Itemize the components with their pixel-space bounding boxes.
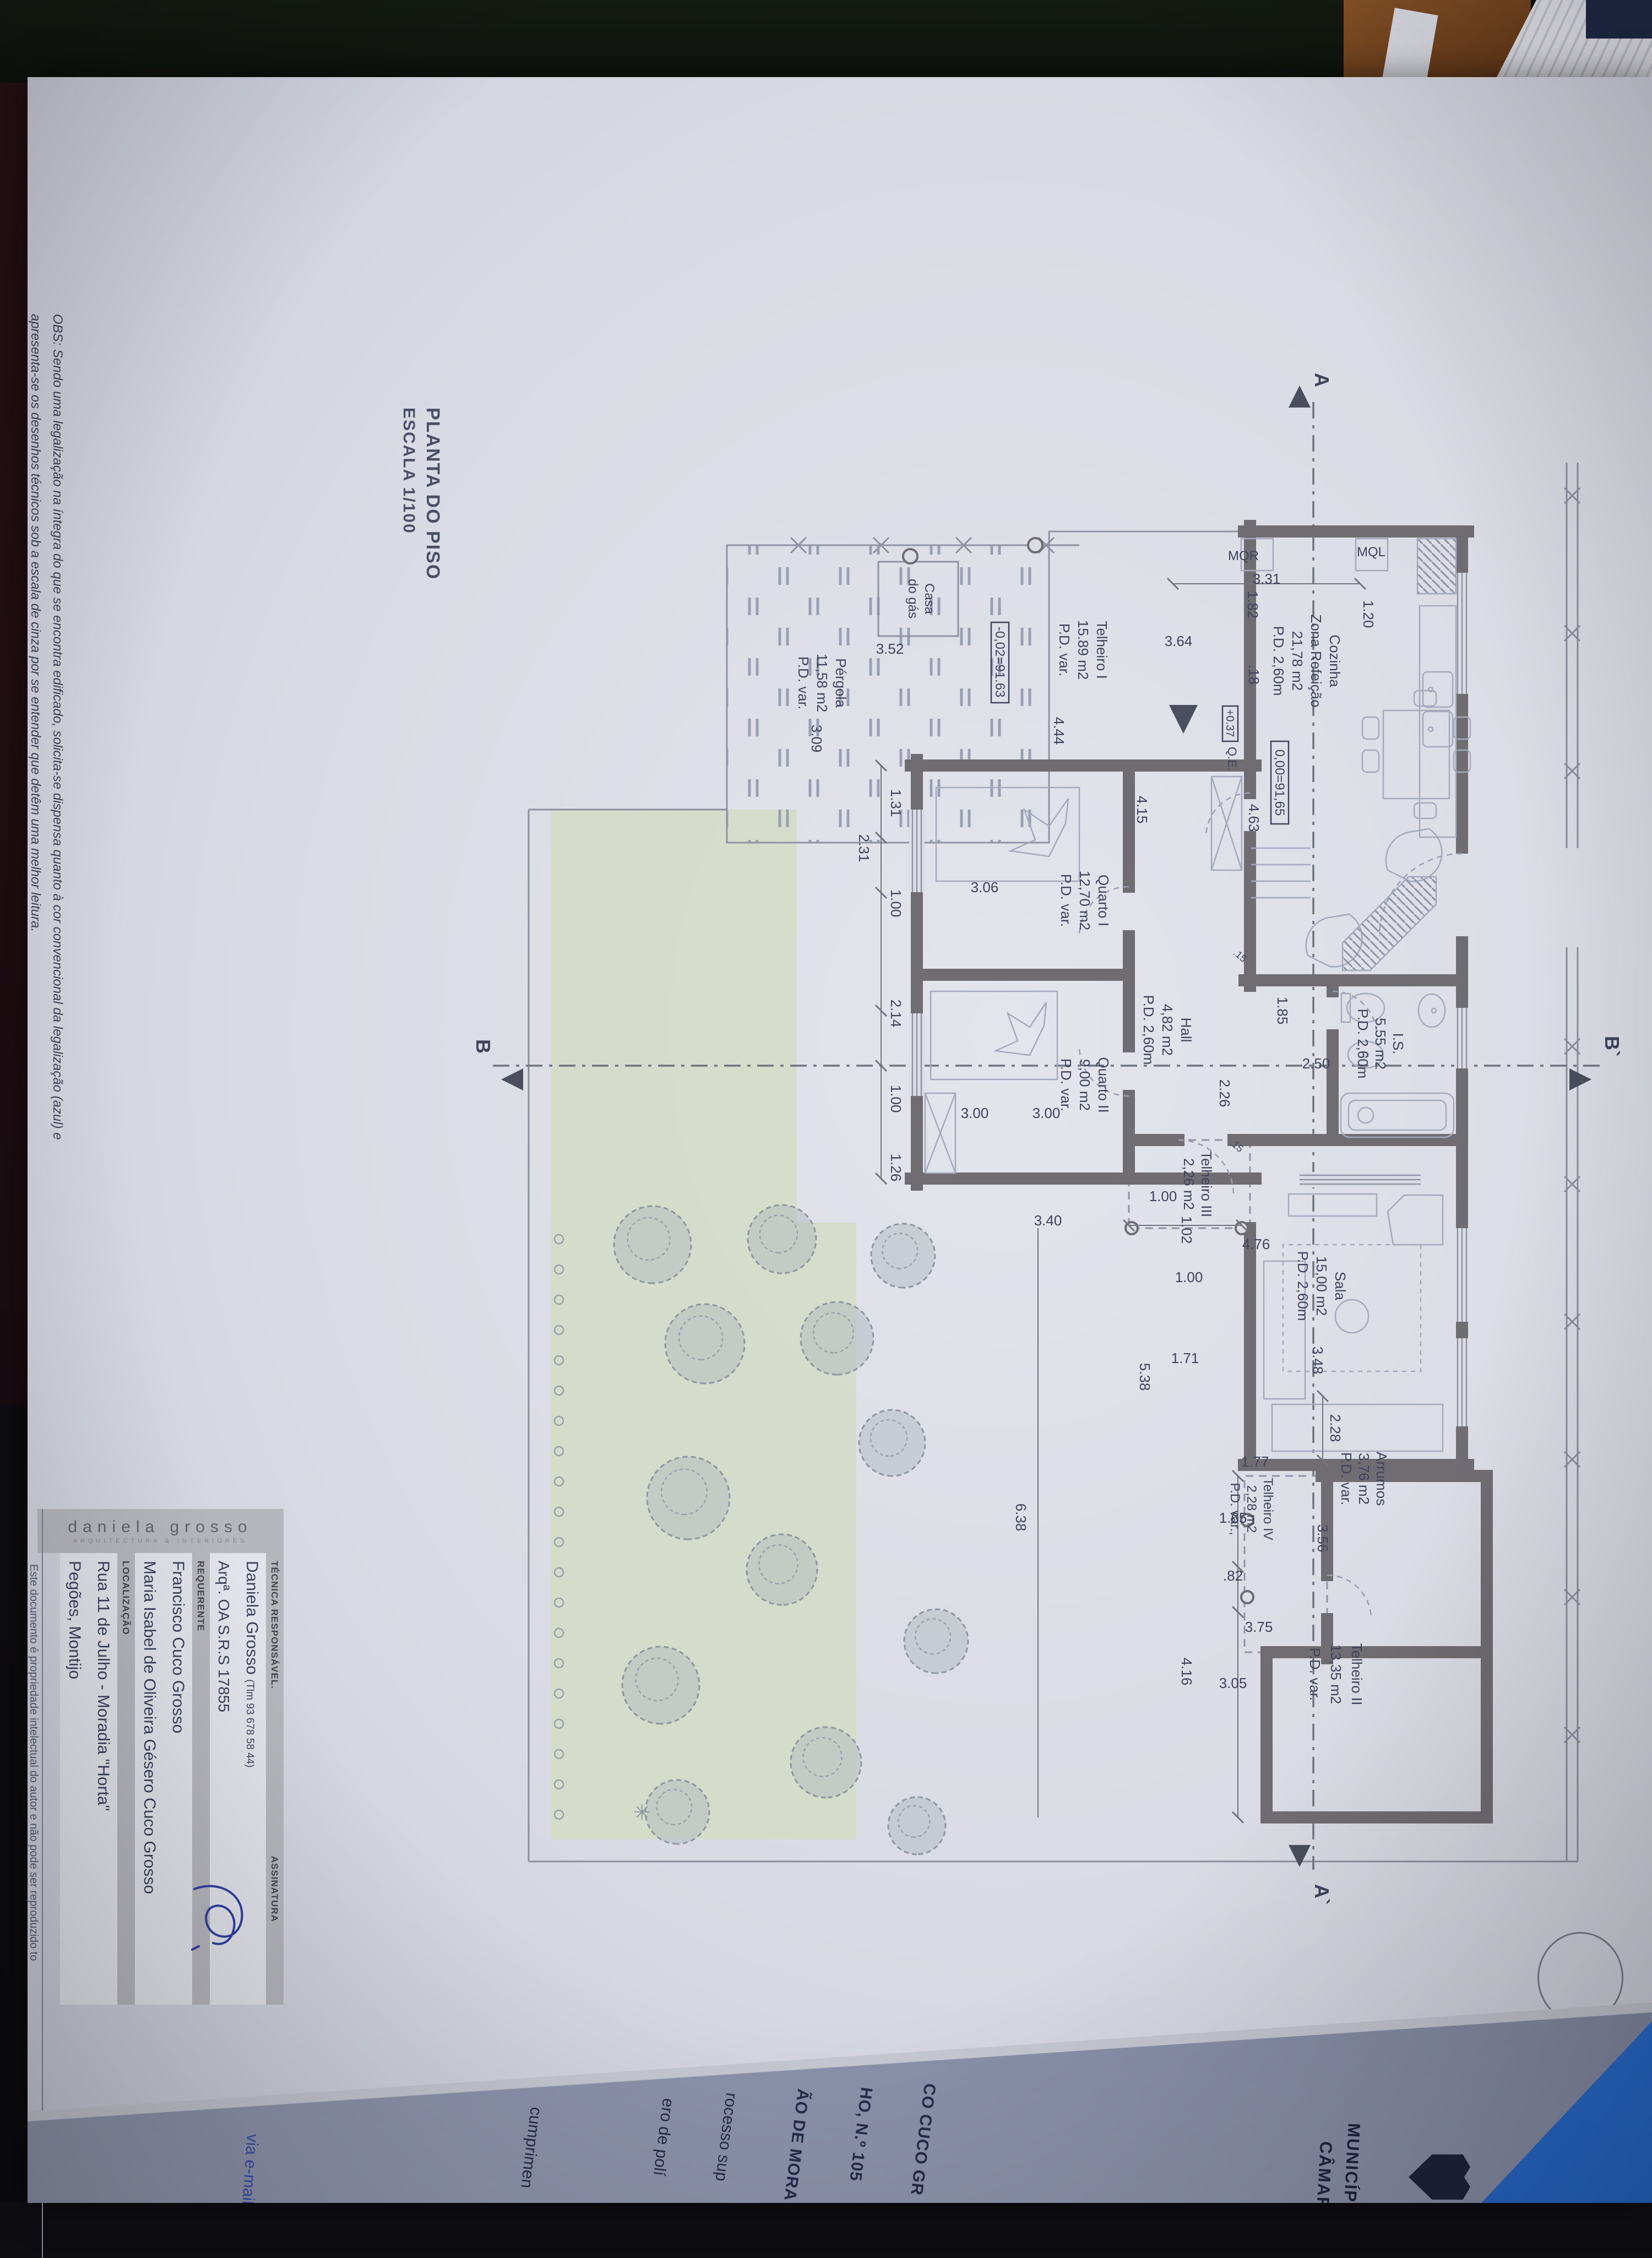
architect-logo-strip: daniela grosso ARQUITECTURA & INTERIORES [37, 1509, 284, 1553]
room-telheiro3-area: 2,26 m2 [1181, 1158, 1197, 1210]
dim-214: 2.14 [888, 1000, 904, 1028]
label-mqr: MQR [1228, 549, 1259, 563]
dim-356: 3.56 [1314, 1524, 1331, 1553]
dim-177: 1.77 [1241, 1453, 1269, 1470]
paper-stack-shadow [1586, 0, 1652, 39]
dim-638: 6.38 [1013, 1503, 1029, 1532]
dim-250: 2.50 [1302, 1055, 1330, 1072]
letter-fragment: ero de polí [649, 2097, 677, 2177]
letter-fragment: rocesso sup [711, 2092, 741, 2183]
room-is-pd: P.D. 2,60m [1355, 1009, 1371, 1079]
level-9163: -0,02=91.63 [992, 627, 1007, 698]
room-is-area: 5.55 m2 [1372, 1018, 1389, 1070]
dim-102: 1.02 [1178, 1216, 1195, 1244]
dim-126: 1.26 [888, 1154, 904, 1182]
via-email-note: via e-mail [238, 2134, 262, 2205]
tree [791, 1727, 861, 1798]
room-telheiro2-area: 13,35 m2 [1328, 1644, 1344, 1704]
room-telheiro2-pd: P.D. var. [1307, 1648, 1323, 1701]
room-cozinha-area: 21,78 m2 [1289, 631, 1306, 691]
room-telheiro4: Telheiro IV [1260, 1478, 1275, 1540]
room-hall: Hall [1178, 1018, 1194, 1043]
level-037: +0.37 [1224, 709, 1236, 737]
dim-131: 1.31 [888, 789, 904, 817]
dim-352: 3.52 [876, 641, 904, 657]
localizacao-1: Rua 11 de Julho - Moradia "Horta" [89, 1553, 117, 2005]
dim-415: 4.15 [1134, 796, 1150, 824]
requerente-2: Maria Isabel de Oliveira Gésero Cuco Gro… [135, 1553, 164, 2005]
dim-476: 4.76 [1242, 1236, 1270, 1252]
dim-375: 3.75 [1245, 1619, 1273, 1635]
dim-364: 3.64 [1165, 633, 1193, 649]
dim-300a: 3.00 [1032, 1105, 1061, 1121]
room-casagas-2: do gás [905, 579, 920, 618]
dim-231: 2.31 [856, 834, 872, 862]
dim-340: 3.40 [1034, 1212, 1062, 1229]
field-label-tecnica: TÉCNICA RESPONSÁVEL. ASSINATURA [266, 1553, 284, 2005]
room-is: I.S. [1390, 1033, 1406, 1054]
room-cozinha: Cozinha [1327, 634, 1343, 687]
label-qe: Q.E. [1225, 747, 1239, 771]
dim-100b: 1.00 [888, 1085, 904, 1113]
municipio-text: MUNICÍPIO [1339, 2123, 1363, 2223]
room-hall-area: 4,82 m2 [1159, 1004, 1176, 1056]
letter-fragment: ÃO DE MORA [780, 2088, 812, 2202]
dim-18: .18 [1246, 665, 1262, 685]
room-telheiro3: Telheiro III [1198, 1151, 1215, 1217]
dim-182: 1.82 [1245, 591, 1261, 619]
room-sala-area: 15,00 m2 [1313, 1256, 1330, 1316]
garden-asterisk: ✳ [629, 1803, 653, 1821]
letter-fragment: cumprimen [517, 2106, 545, 2189]
room-pergola: Pérgola [833, 658, 849, 708]
room-cozinha-pd: P.D. 2,60m [1270, 626, 1287, 696]
room-telheiro1: Telheiro I [1094, 621, 1110, 679]
entrance-arrow [1169, 705, 1198, 734]
marker-b: B [472, 1039, 494, 1054]
dim-100c: 1.00 [1149, 1188, 1177, 1204]
room-telheiro2: Telheiro II [1349, 1643, 1365, 1706]
dim-463: 4.63 [1246, 804, 1262, 832]
field-label-assinatura: ASSINATURA [269, 1856, 280, 2005]
marker-a-prime: A` [1311, 1884, 1333, 1905]
room-quarto1-area: 12,70 m2 [1077, 871, 1093, 930]
architect-logo-sub: ARQUITECTURA & INTERIORES [68, 1538, 253, 1544]
room-telheiro1-area: 15.89 m2 [1075, 620, 1091, 680]
obs-note: OBS: Sendo uma legalização na íntegra do… [24, 314, 68, 1140]
tree [801, 1302, 873, 1375]
tree [904, 1609, 968, 1673]
room-quarto2-pd: P.D. var. [1058, 1059, 1074, 1111]
tree [622, 1647, 699, 1724]
room-telheiro1-pd: P.D. var. [1056, 623, 1073, 676]
room-pergola-area: 11,58 m2 [814, 654, 830, 712]
camara-text: CÂMARA [1312, 2141, 1336, 2224]
obs-line1: OBS: Sendo uma legalização na íntegra do… [46, 314, 68, 1140]
localizacao-2: Pegões, Montijo [60, 1553, 89, 2005]
room-telheiro4-pd: P.D. var., [1227, 1483, 1242, 1535]
dim-228: 2.28 [1327, 1414, 1344, 1442]
drawing-scale: ESCALA 1/100 [396, 408, 421, 580]
dim-171: 1.71 [1171, 1350, 1199, 1366]
signature [173, 1872, 256, 1983]
marker-a: A [1311, 373, 1333, 387]
tree [888, 1797, 945, 1854]
dim-444: 4.44 [1051, 717, 1067, 745]
drawing-title: PLANTA DO PISO ESCALA 1/100 [396, 408, 445, 580]
tree [614, 1206, 691, 1283]
letter-fragment: HO, N.º 105 [845, 2086, 876, 2183]
drawing-sheet: CozinhaZona Refeição21,78 m2P.D. 2,60mTe… [28, 77, 1652, 2203]
dim-165: 1.65 [1219, 1510, 1247, 1526]
dim-538: 5.38 [1137, 1363, 1153, 1391]
tree [645, 1780, 709, 1844]
dim-306: 3.06 [971, 879, 999, 895]
tree [747, 1534, 817, 1605]
architect-logo: daniela grosso [68, 1518, 253, 1537]
letter-fragment: CO CUCO GR [906, 2082, 939, 2197]
room-arrumos: Arrumos [1373, 1452, 1390, 1506]
dim-348: 3.48 [1309, 1347, 1326, 1375]
tree [871, 1224, 935, 1288]
room-sala: Sala [1332, 1272, 1349, 1301]
room-pergola-pd: P.D. var. [795, 656, 812, 709]
dim-100d: 1.00 [1175, 1269, 1203, 1285]
room-cozinha-2: Zona Refeição [1308, 614, 1324, 707]
level-9165: 0,00=91,65 [1272, 750, 1287, 816]
label-mql: MQL [1357, 545, 1385, 560]
drawing-title-line1: PLANTA DO PISO [421, 408, 445, 580]
room-sala-pd: P.D. 2,60m [1295, 1251, 1311, 1321]
dim-300b: 3.00 [961, 1105, 989, 1121]
coat-of-arms-emblem [1409, 2154, 1470, 2200]
room-casagas-1: Casa [922, 583, 937, 615]
room-arrumos-pd: P.D. var. [1338, 1452, 1355, 1505]
room-arrumos-area: 3,76 m2 [1356, 1453, 1372, 1505]
room-quarto2: Quarto II [1095, 1057, 1112, 1112]
dim-331: 3.31 [1253, 571, 1281, 587]
dim-309: 3.09 [808, 725, 825, 753]
tree [665, 1304, 745, 1383]
room-quarto1-pd: P.D. var. [1058, 874, 1074, 927]
dim-82: .82 [1223, 1567, 1243, 1584]
dim-185: 1.85 [1274, 997, 1291, 1025]
obs-line2: apresenta-se os desenhos técnicos sob a … [24, 314, 46, 1140]
room-quarto1: Quarto I [1095, 875, 1112, 926]
dim-120: 1.20 [1360, 600, 1377, 628]
desk-surface-dark [0, 0, 1360, 84]
field-label-localizacao: LOCALIZAÇÃO [117, 1553, 135, 2005]
title-block: daniela grosso ARQUITECTURA & INTERIORES… [37, 1509, 284, 2005]
dim-305: 3.05 [1219, 1675, 1247, 1691]
room-hall-pd: P.D. 2,60m [1140, 995, 1157, 1065]
dim-416: 4.16 [1178, 1658, 1195, 1686]
dim-100a: 1.00 [888, 889, 904, 918]
room-quarto2-area: 9,00 m2 [1077, 1059, 1093, 1111]
marker-b-prime: B` [1601, 1036, 1623, 1057]
dim-226: 2.26 [1216, 1079, 1233, 1108]
tree [859, 1410, 925, 1476]
photo-of-floor-plan-document: { "colors":{"ink":"#3f445c","wall":"#6f6… [0, 0, 1652, 2203]
